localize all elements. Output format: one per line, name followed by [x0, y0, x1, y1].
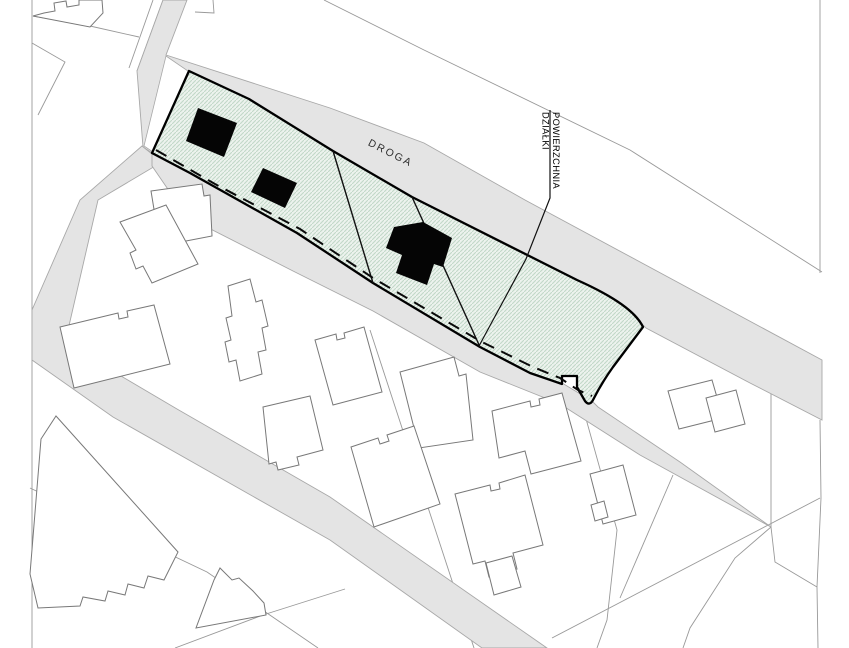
parcel-area-label-line2: DZIAŁKI [541, 112, 551, 150]
parcel-area-label-line1: POWIERZCHNIA [551, 112, 561, 190]
site-plan-page: POWIERZCHNIA DZIAŁKI DROGA [0, 0, 849, 648]
site-plan-svg: POWIERZCHNIA DZIAŁKI DROGA [0, 0, 849, 648]
